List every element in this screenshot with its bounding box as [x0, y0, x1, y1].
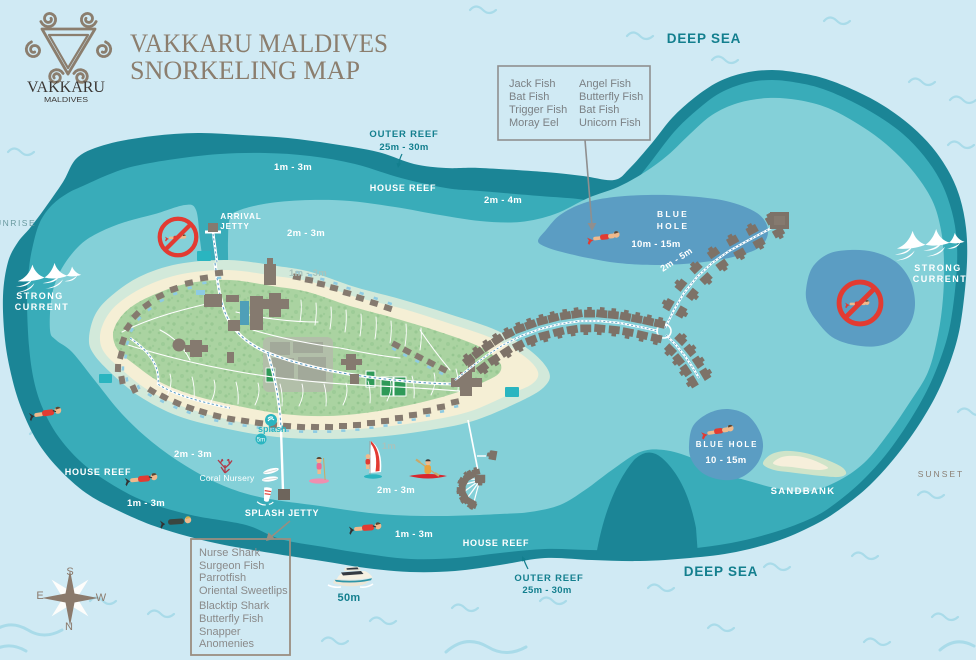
svg-text:Parrotfish: Parrotfish: [199, 572, 246, 584]
svg-text:splash: splash: [258, 424, 287, 434]
svg-text:SPLASH JETTY: SPLASH JETTY: [245, 508, 319, 518]
svg-text:Jack Fish: Jack Fish: [509, 78, 555, 90]
svg-text:25m - 30m: 25m - 30m: [522, 585, 571, 596]
svg-text:2m - 4m: 2m - 4m: [484, 195, 522, 206]
svg-text:HOUSE REEF: HOUSE REEF: [463, 538, 530, 548]
svg-text:STRONG: STRONG: [914, 263, 962, 273]
svg-text:1m - 3m: 1m - 3m: [289, 268, 327, 279]
svg-text:2m - 3m: 2m - 3m: [287, 228, 325, 239]
svg-text:Unicorn Fish: Unicorn Fish: [579, 117, 641, 129]
svg-text:2m - 3m: 2m - 3m: [174, 449, 212, 460]
svg-text:1m - 3m: 1m - 3m: [395, 529, 433, 540]
svg-text:HOUSE REEF: HOUSE REEF: [370, 183, 437, 193]
svg-text:2m - 3m: 2m - 3m: [377, 485, 415, 496]
svg-text:Nurse Shark: Nurse Shark: [199, 547, 261, 559]
svg-text:SUNSET: SUNSET: [918, 469, 964, 479]
svg-text:10m - 15m: 10m - 15m: [631, 239, 680, 250]
svg-text:10 - 15m: 10 - 15m: [705, 455, 746, 466]
svg-text:W: W: [96, 592, 107, 604]
svg-text:Anomenies: Anomenies: [199, 638, 255, 650]
svg-text:STRONG: STRONG: [16, 291, 64, 301]
svg-text:DEEP SEA: DEEP SEA: [667, 31, 741, 46]
svg-text:VAKKARU MALDIVES: VAKKARU MALDIVES: [130, 29, 388, 58]
svg-text:Butterfly Fish: Butterfly Fish: [579, 91, 643, 103]
svg-text:Blacktip Shark: Blacktip Shark: [199, 600, 270, 612]
svg-text:MALDIVES: MALDIVES: [44, 97, 88, 104]
svg-text:Bat Fish: Bat Fish: [509, 91, 549, 103]
svg-text:CURRENT: CURRENT: [913, 274, 968, 284]
svg-text:Snapper: Snapper: [199, 626, 241, 638]
svg-text:ARRIVAL: ARRIVAL: [220, 212, 261, 221]
svg-text:SNORKELING MAP: SNORKELING MAP: [130, 56, 360, 85]
svg-text:Butterfly Fish: Butterfly Fish: [199, 613, 263, 625]
svg-text:N: N: [65, 621, 73, 633]
svg-text:Surgeon Fish: Surgeon Fish: [199, 560, 264, 572]
svg-text:E: E: [36, 590, 43, 602]
svg-text:VAKKARU: VAKKARU: [27, 79, 105, 96]
svg-text:Moray Eel: Moray Eel: [509, 117, 559, 129]
svg-text:25m - 30m: 25m - 30m: [379, 142, 428, 153]
svg-text:50m: 50m: [338, 592, 361, 604]
svg-text:HOUSE REEF: HOUSE REEF: [65, 467, 132, 477]
svg-text:Bat Fish: Bat Fish: [579, 104, 619, 116]
svg-text:HOLE: HOLE: [657, 221, 689, 231]
svg-text:S: S: [66, 566, 73, 578]
svg-text:1m - 3m: 1m - 3m: [274, 162, 312, 173]
svg-text:5m: 5m: [257, 438, 265, 444]
svg-text:BLUE HOLE: BLUE HOLE: [696, 440, 758, 449]
svg-text:1m: 1m: [382, 441, 396, 452]
svg-text:Coral Nursery: Coral Nursery: [199, 473, 255, 483]
svg-text:DEEP SEA: DEEP SEA: [684, 564, 758, 579]
svg-text:SANDBANK: SANDBANK: [771, 486, 836, 497]
svg-text:SUNRISE: SUNRISE: [0, 218, 36, 228]
svg-text:1m - 3m: 1m - 3m: [127, 498, 165, 509]
svg-text:Oriental Sweetlips: Oriental Sweetlips: [199, 585, 288, 597]
svg-text:CURRENT: CURRENT: [15, 302, 70, 312]
svg-text:Trigger Fish: Trigger Fish: [509, 104, 567, 116]
svg-text:OUTER REEF: OUTER REEF: [514, 573, 583, 584]
svg-text:Angel Fish: Angel Fish: [579, 78, 631, 90]
svg-text:JETTY: JETTY: [220, 222, 249, 231]
svg-text:BLUE: BLUE: [657, 209, 689, 219]
svg-text:OUTER REEF: OUTER REEF: [369, 129, 438, 140]
